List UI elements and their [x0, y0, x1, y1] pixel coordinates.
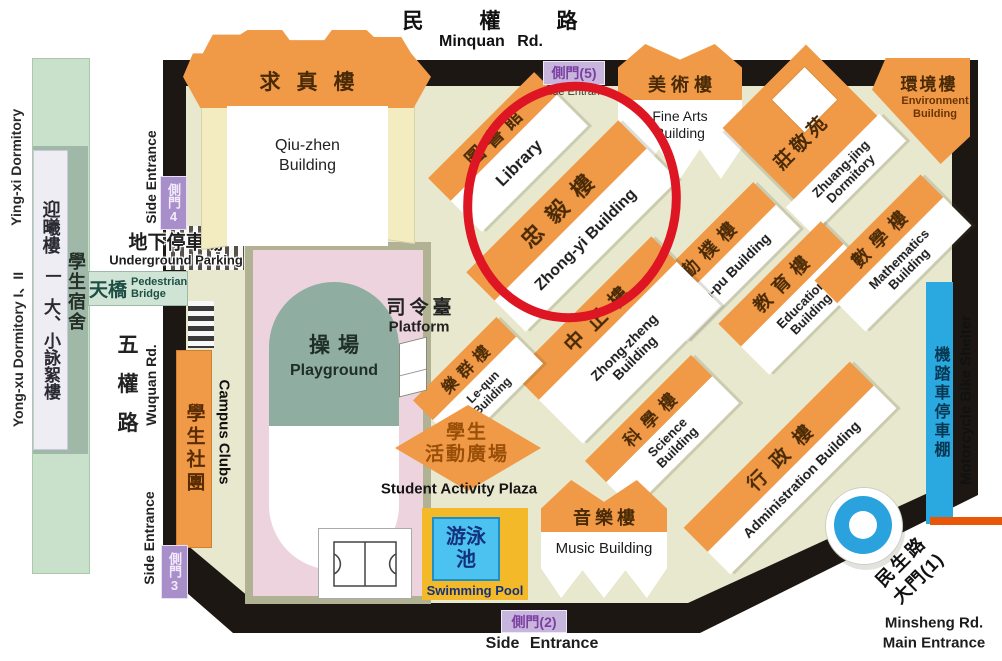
- campus-clubs-bar: 學生社團: [176, 350, 212, 548]
- gate-2-side-entrance: Side Entrance: [486, 635, 599, 653]
- music-face: Music Building: [541, 532, 667, 598]
- music-en: Music Building: [541, 532, 667, 557]
- qiuzhen-right-wing: [386, 92, 415, 244]
- swimming-pool-zh: 游泳池: [444, 526, 488, 572]
- environment-en: Environment Building: [898, 95, 972, 121]
- dormitory-side-label: Yong-xu Dormitory I、II Ying-xi Dormitory: [8, 109, 28, 427]
- finearts-en: Fine Arts Building: [618, 100, 742, 142]
- plaza-en: Student Activity Plaza: [381, 481, 537, 498]
- platform-zh: 司令臺: [382, 293, 455, 320]
- gate-2-badge: 側門(2): [501, 610, 567, 633]
- student-dormitory-label: 學生宿舍: [63, 252, 89, 332]
- swimming-pool: 游泳池: [432, 517, 500, 581]
- pedestrian-bridge: 天橋 Pedestrian Bridge: [88, 271, 188, 306]
- underground-parking-en: Underground Parking: [109, 253, 243, 268]
- wuquan-road-en: Wuquan Rd.: [143, 344, 159, 425]
- minsheng-road-en2: Main Entrance: [883, 633, 986, 653]
- playground-en: Playground: [290, 362, 378, 380]
- bike-shelter-en: Motorcycle Bike Shelter: [958, 315, 975, 485]
- wuquan-road-zh: 五權路: [111, 334, 141, 451]
- campus-map: Yong-xu Dormitory I、II Ying-xi Dormitory…: [0, 0, 1002, 661]
- finearts-roof: 美術樓: [618, 44, 742, 100]
- main-entrance-line: [930, 517, 1002, 525]
- plaza-zh-line1: 學生: [425, 422, 509, 444]
- side-entrance-lower-left: Side Entrance: [141, 491, 157, 584]
- gate-5-badge: 側門(5): [543, 61, 605, 85]
- minsheng-road-en1: Minsheng Rd.: [883, 614, 986, 634]
- yingxi-dormitory-en: Ying-xi Dormitory: [8, 109, 28, 226]
- side-entrance-upper-left: Side Entrance: [143, 130, 159, 223]
- crosswalk-stripes: [188, 301, 214, 348]
- gate-4-label: 側門4: [164, 183, 183, 224]
- campus-clubs-zh: 學生社團: [181, 403, 208, 495]
- platform-en: Platform: [389, 319, 450, 336]
- fountain: [825, 487, 901, 563]
- basketball-court: [318, 528, 412, 599]
- minsheng-road-en-label: Minsheng Rd. Main Entrance: [883, 614, 986, 653]
- minquan-road-en: Minquan Rd.: [439, 33, 543, 51]
- gate-4-badge: 側門4: [160, 176, 187, 230]
- yingxi-dormitory-zh: 迎曦樓: [38, 200, 64, 254]
- running-track: 操場 Playground: [269, 282, 399, 570]
- platform-structure: [399, 337, 427, 398]
- campus-clubs-en: Campus Clubs: [216, 379, 233, 484]
- swimming-pool-en: Swimming Pool: [422, 583, 528, 598]
- qiuzhen-face: Qiu-zhen Building: [227, 106, 388, 246]
- yongxu-dormitory-zh: 大、小詠絮樓: [38, 298, 63, 400]
- qiuzhen-left-wing: [201, 92, 230, 250]
- qiuzhen-roof: 求真樓: [183, 30, 431, 108]
- plaza-zh-line2: 活動廣場: [425, 444, 509, 466]
- basketball-court-icon: [333, 541, 397, 587]
- dormitory-divider: 一: [39, 268, 63, 284]
- finearts-zh: 美術樓: [643, 71, 717, 97]
- bike-shelter-zh: 機踏車停車棚: [928, 346, 952, 460]
- minquan-road-zh: 民權路: [347, 5, 634, 35]
- pedestrian-bridge-en: Pedestrian Bridge: [131, 277, 187, 300]
- gate-3-badge: 側門3: [161, 545, 188, 599]
- pedestrian-bridge-zh: 天橋: [89, 275, 127, 302]
- gate-5-side-entrance: Side Entrance: [542, 86, 611, 98]
- qiuzhen-en: Qiu-zhen Building: [227, 136, 388, 176]
- yongxu-dormitory-en: Yong-xu Dormitory I、II: [8, 272, 28, 427]
- plaza-zh-label: 學生 活動廣場: [425, 422, 509, 466]
- building-qiuzhen: 求真樓 Qiu-zhen Building: [183, 28, 431, 236]
- environment-zh: 環境樓: [888, 70, 970, 95]
- building-music: 音樂樓 Music Building: [541, 480, 667, 598]
- bike-shelter-bar: 機踏車停車棚: [926, 282, 953, 524]
- music-zh: 音樂樓: [569, 504, 639, 530]
- swimming-pool-deck: 游泳池 Swimming Pool: [422, 508, 528, 600]
- music-roof: 音樂樓: [541, 480, 667, 532]
- playground-zh: 操場: [301, 329, 367, 359]
- gate-3-label: 側門3: [165, 552, 184, 593]
- qiuzhen-zh: 求真樓: [244, 66, 371, 96]
